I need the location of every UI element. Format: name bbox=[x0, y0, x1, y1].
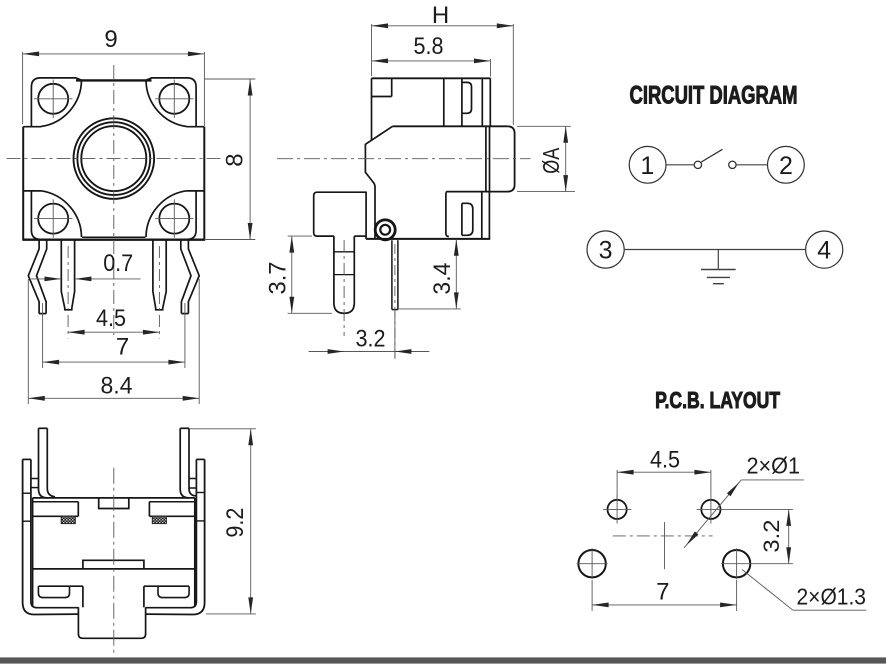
svg-text:3: 3 bbox=[599, 237, 613, 265]
svg-text:4.5: 4.5 bbox=[96, 305, 126, 332]
svg-text:9: 9 bbox=[104, 26, 117, 53]
svg-text:ØA: ØA bbox=[538, 147, 564, 174]
svg-text:2: 2 bbox=[779, 152, 793, 180]
svg-text:3.7: 3.7 bbox=[265, 262, 292, 295]
svg-text:9.2: 9.2 bbox=[222, 508, 249, 538]
svg-text:7: 7 bbox=[656, 579, 669, 606]
svg-text:H: H bbox=[432, 2, 449, 29]
svg-text:CIRCUIT DIAGRAM: CIRCUIT DIAGRAM bbox=[630, 82, 798, 110]
svg-text:3.2: 3.2 bbox=[356, 326, 386, 353]
svg-text:8: 8 bbox=[221, 153, 248, 166]
svg-text:P.C.B. LAYOUT: P.C.B. LAYOUT bbox=[655, 387, 780, 413]
svg-text:7: 7 bbox=[116, 334, 129, 361]
svg-text:4.5: 4.5 bbox=[650, 447, 680, 474]
svg-text:5.8: 5.8 bbox=[414, 33, 444, 60]
svg-text:2×Ø1: 2×Ø1 bbox=[747, 453, 801, 479]
svg-text:4: 4 bbox=[817, 237, 831, 265]
svg-text:0.7: 0.7 bbox=[103, 250, 133, 277]
svg-text:3.4: 3.4 bbox=[429, 263, 456, 295]
svg-text:8.4: 8.4 bbox=[101, 372, 133, 399]
svg-text:3.2: 3.2 bbox=[759, 520, 784, 553]
svg-text:1: 1 bbox=[640, 152, 654, 180]
svg-text:2×Ø1.3: 2×Ø1.3 bbox=[797, 583, 867, 609]
